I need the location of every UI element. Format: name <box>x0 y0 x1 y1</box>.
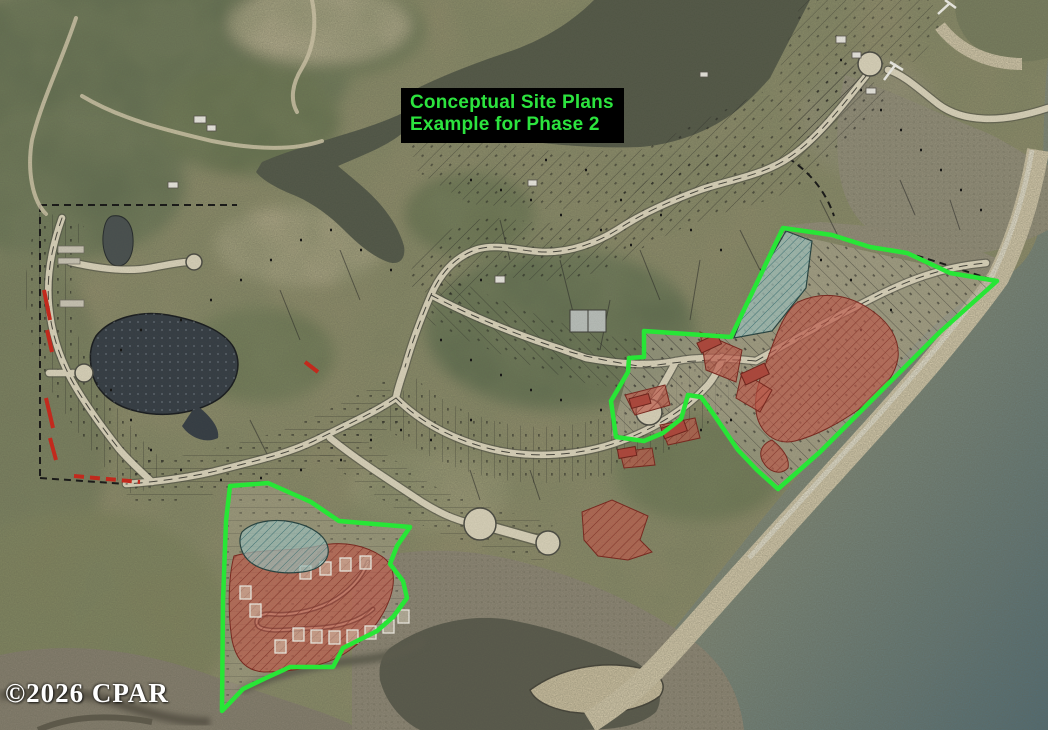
annotation-line-1: Conceptual Site Plans <box>410 92 614 114</box>
copyright-watermark: ©2026 CPAR <box>5 678 169 709</box>
annotation-label: Conceptual Site Plans Example for Phase … <box>401 88 624 143</box>
annotation-line-2: Example for Phase 2 <box>410 114 614 136</box>
aerial-site-plan-map: Conceptual Site Plans Example for Phase … <box>0 0 1048 730</box>
